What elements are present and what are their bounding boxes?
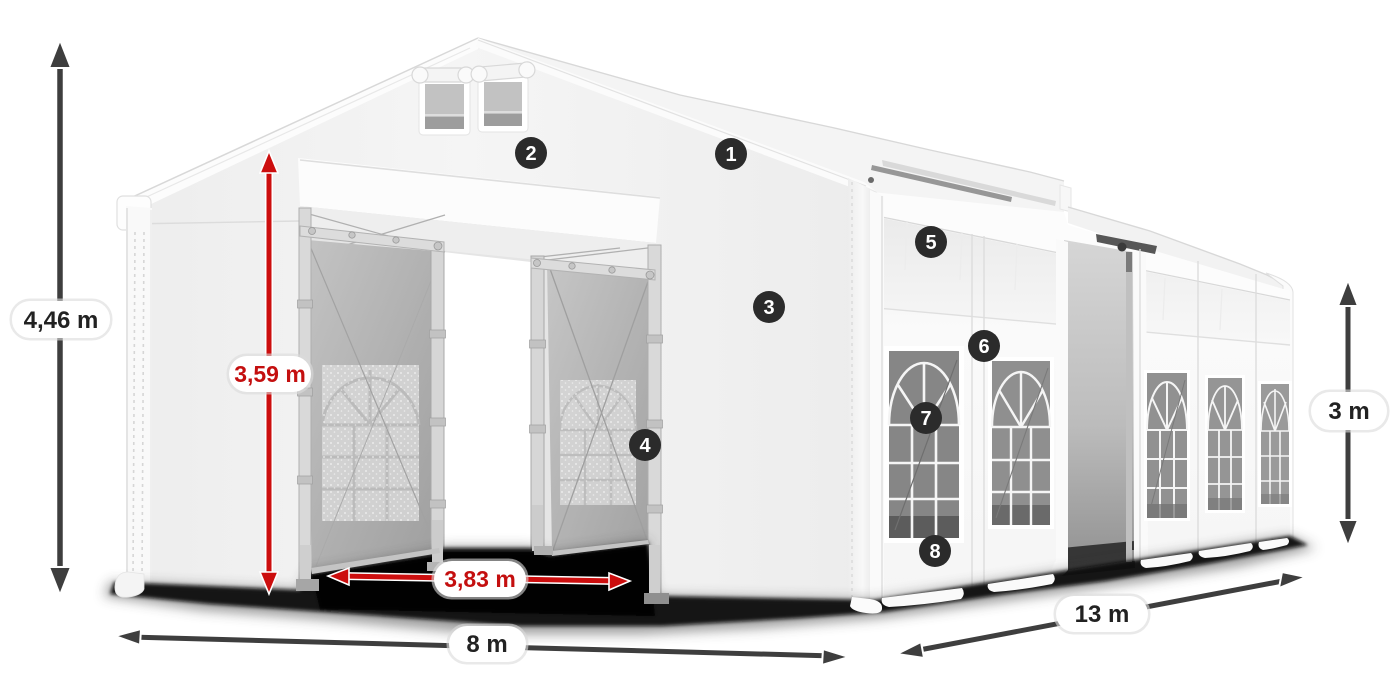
svg-text:3 m: 3 m bbox=[1328, 398, 1369, 425]
svg-text:4: 4 bbox=[639, 435, 651, 457]
svg-text:2: 2 bbox=[525, 143, 536, 165]
svg-text:7: 7 bbox=[920, 408, 931, 430]
svg-text:6: 6 bbox=[978, 336, 989, 358]
svg-text:5: 5 bbox=[925, 232, 936, 254]
svg-text:13 m: 13 m bbox=[1075, 601, 1130, 628]
svg-text:4,46 m: 4,46 m bbox=[24, 307, 99, 334]
svg-text:1: 1 bbox=[725, 144, 736, 166]
svg-text:8: 8 bbox=[929, 541, 940, 563]
svg-text:3,59 m: 3,59 m bbox=[234, 361, 306, 387]
svg-text:3: 3 bbox=[763, 297, 774, 319]
svg-text:3,83 m: 3,83 m bbox=[444, 566, 516, 592]
svg-text:8 m: 8 m bbox=[466, 631, 507, 658]
